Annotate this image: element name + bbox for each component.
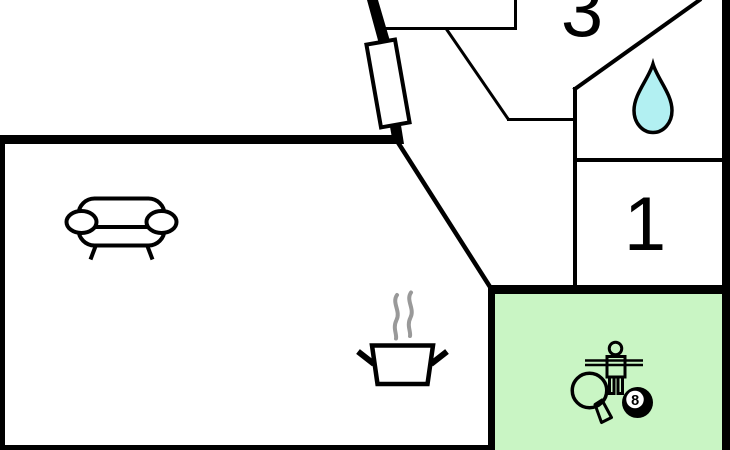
wall-bottom <box>0 445 490 450</box>
floor-plan: 3 1 <box>0 0 730 450</box>
room-3-label: 3 <box>561 0 603 54</box>
wall-right <box>722 0 730 450</box>
wall-gameroom-left <box>488 294 495 450</box>
billiard-8ball-icon: 8 <box>622 387 653 418</box>
wall-main-horizontal <box>0 135 401 144</box>
wall-left <box>0 135 5 450</box>
wall-gameroom-top <box>488 285 730 294</box>
sofa-armrest-right <box>147 211 177 233</box>
room-1-label: 1 <box>624 182 666 267</box>
eight-ball-number: 8 <box>631 393 639 409</box>
pot-body <box>372 346 433 385</box>
sofa-armrest-left <box>67 211 97 233</box>
